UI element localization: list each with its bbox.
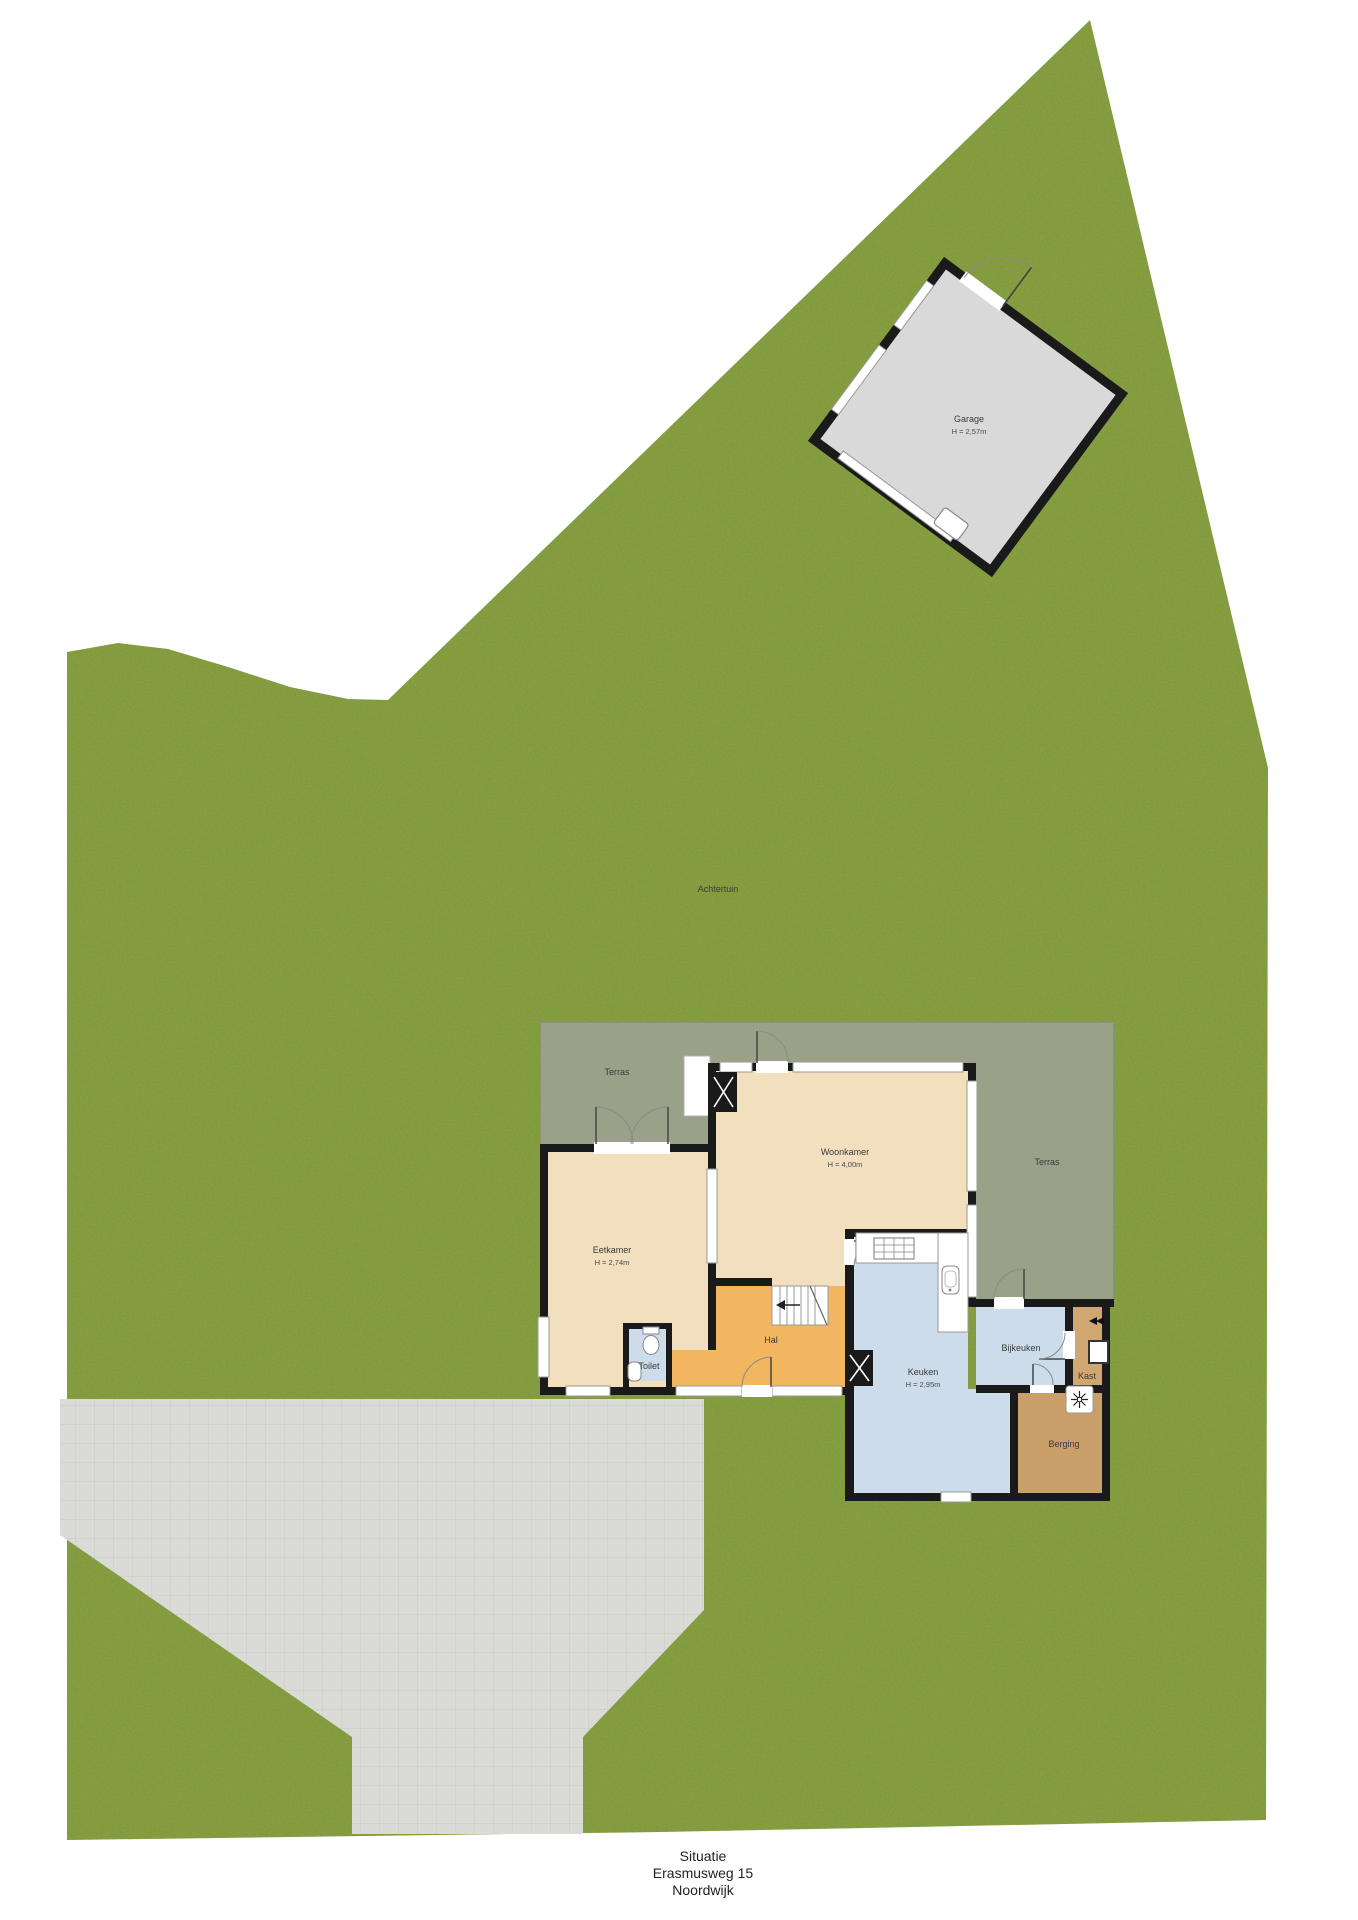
site-plan-svg: Garage H = 2,57m Achtertuin (0, 0, 1358, 1920)
title-line-2: Erasmusweg 15 (653, 1865, 754, 1881)
toilet-label: Toilet (638, 1361, 660, 1371)
keuken-label: Keuken (908, 1367, 939, 1377)
terras-left-label: Terras (604, 1067, 630, 1077)
terrace-recess (684, 1056, 710, 1116)
woonkamer-label: Woonkamer (821, 1147, 869, 1157)
ventilation-unit-icon (1066, 1386, 1093, 1413)
berging-label: Berging (1048, 1439, 1079, 1449)
staircase (772, 1286, 828, 1325)
cooktop-icon (874, 1238, 914, 1259)
eetkamer-label: Eetkamer (593, 1245, 632, 1255)
toilet-bowl-icon (643, 1336, 659, 1355)
title-line-3: Noordwijk (672, 1882, 734, 1898)
plan-title: Situatie Erasmusweg 15 Noordwijk (653, 1848, 754, 1898)
terras-right-label: Terras (1034, 1157, 1060, 1167)
bijkeuken-label: Bijkeuken (1001, 1343, 1040, 1353)
title-line-1: Situatie (680, 1848, 727, 1864)
garage-height-label: H = 2,57m (952, 427, 987, 436)
sink-icon (942, 1266, 959, 1294)
kast-label: Kast (1078, 1371, 1097, 1381)
hal-label: Hal (764, 1335, 778, 1345)
woonkamer-height-label: H = 4,00m (828, 1160, 863, 1169)
keuken-height-label: H = 2,95m (906, 1380, 941, 1389)
toilet-cistern (643, 1327, 659, 1334)
garage-label: Garage (954, 414, 984, 424)
boiler-icon (1089, 1341, 1108, 1363)
garden-label: Achtertuin (698, 884, 739, 894)
eetkamer-height-label: H = 2,74m (595, 1258, 630, 1267)
situation-plan-page: Garage H = 2,57m Achtertuin (0, 0, 1358, 1920)
